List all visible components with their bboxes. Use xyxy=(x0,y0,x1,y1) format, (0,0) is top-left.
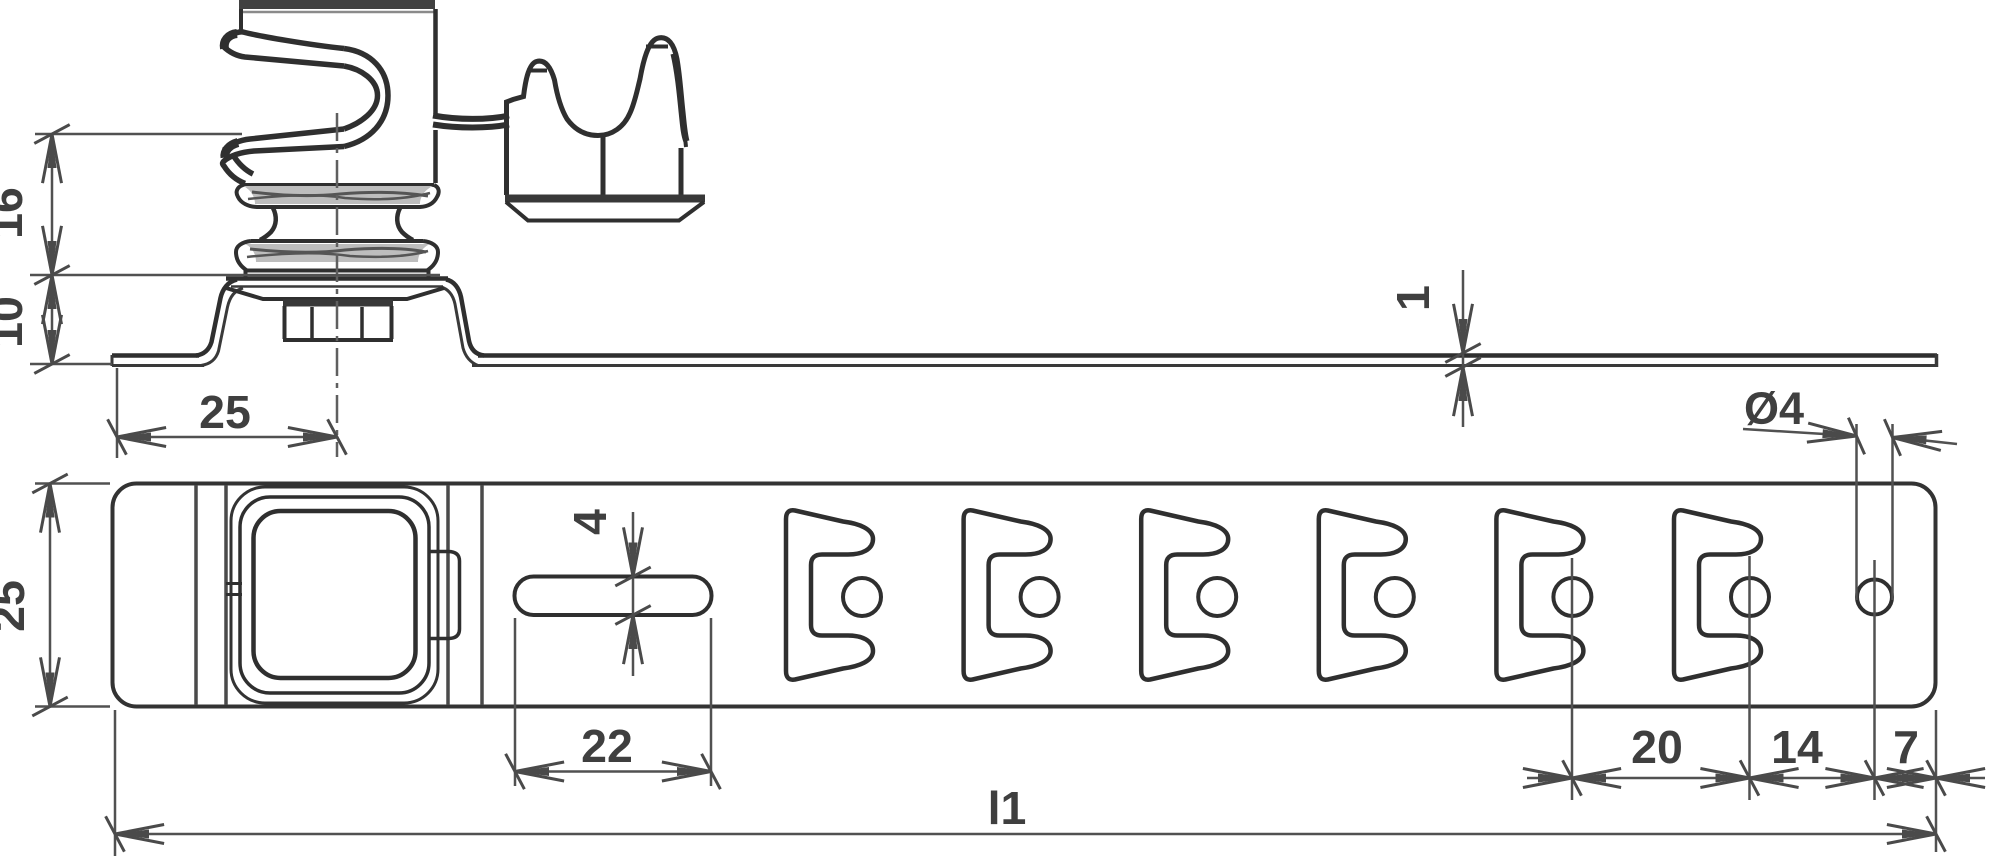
svg-text:7: 7 xyxy=(1893,721,1919,773)
svg-text:4: 4 xyxy=(564,509,616,535)
svg-text:1: 1 xyxy=(1387,285,1439,311)
svg-text:14: 14 xyxy=(1771,721,1823,773)
svg-text:Ø4: Ø4 xyxy=(1744,383,1804,434)
svg-text:25: 25 xyxy=(0,580,34,632)
svg-text:25: 25 xyxy=(199,386,251,438)
svg-text:16: 16 xyxy=(0,187,32,239)
svg-text:l1: l1 xyxy=(988,782,1027,834)
svg-text:20: 20 xyxy=(1631,721,1683,773)
svg-text:10: 10 xyxy=(0,296,32,348)
svg-text:22: 22 xyxy=(581,720,633,772)
